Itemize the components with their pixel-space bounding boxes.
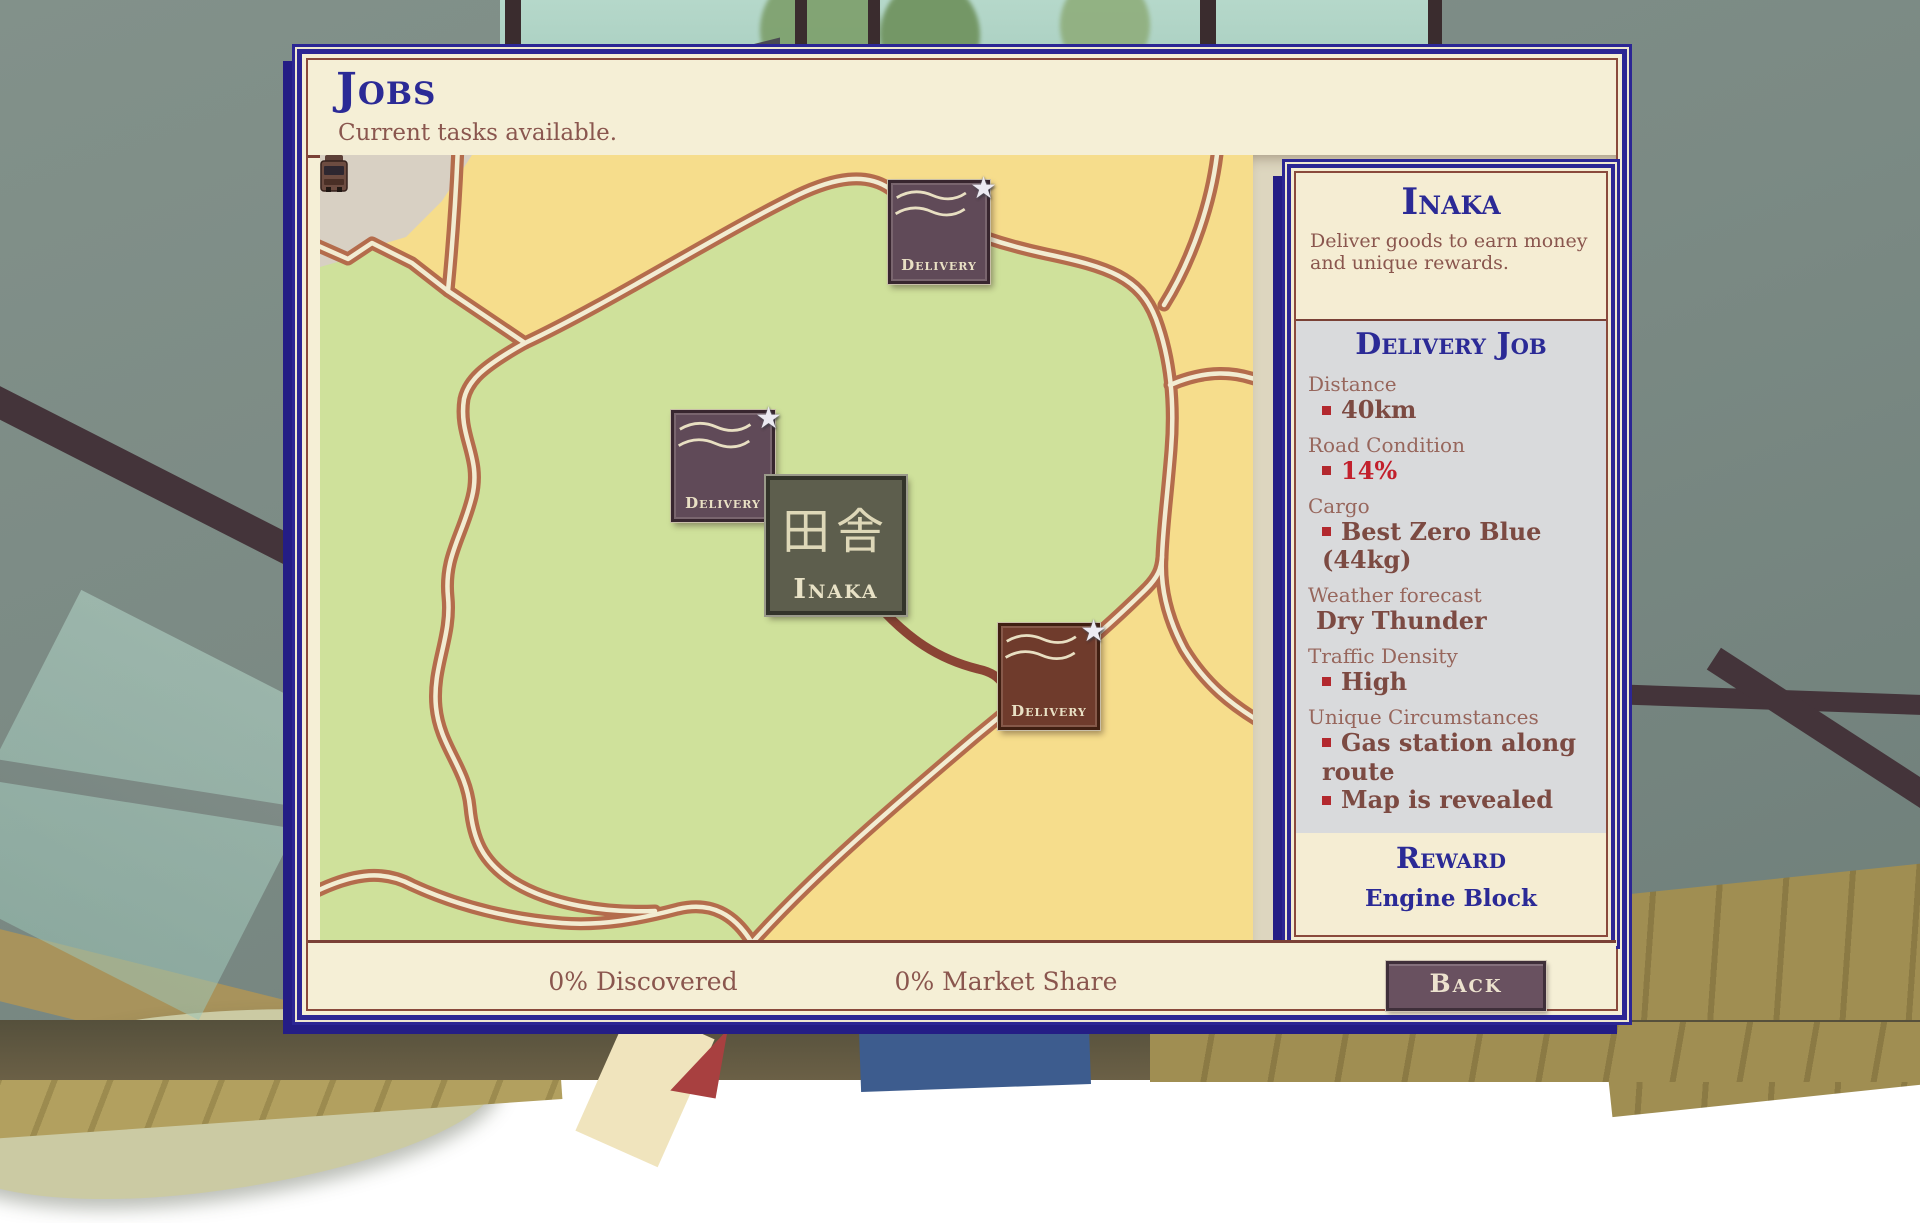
field-distance: Distance 40km	[1308, 373, 1600, 425]
delivery-job-marker-west[interactable]: Delivery ★	[671, 410, 775, 522]
reward-title: Reward	[1296, 841, 1606, 875]
delivery-job-marker-southeast[interactable]: Delivery ★	[998, 623, 1100, 730]
bullet-icon	[1322, 738, 1331, 747]
reward-value: Engine Block	[1296, 885, 1606, 912]
page-title: Jobs	[336, 64, 436, 115]
bullet-icon	[1322, 466, 1331, 475]
field-weather: Weather forecast Dry Thunder	[1308, 584, 1600, 636]
bullet-icon	[1322, 527, 1331, 536]
job-map[interactable]: Delivery ★ Delivery ★ Delivery ★	[320, 155, 1253, 940]
town-sign-kanji: 田舎	[770, 492, 902, 562]
status-bar: 0% Discovered 0% Market Share Back	[308, 940, 1616, 1009]
field-value: Map is revealed	[1308, 786, 1600, 815]
delivery-job-marker-north[interactable]: Delivery ★	[888, 180, 990, 284]
field-label: Unique Circumstances	[1308, 706, 1600, 729]
field-value: High	[1308, 668, 1600, 697]
market-share-stat: 0% Market Share	[796, 967, 1216, 996]
page-subtitle: Current tasks available.	[338, 120, 617, 146]
sidebar-description: Deliver goods to earn money and unique r…	[1310, 231, 1592, 275]
job-details-sidebar: Inaka Deliver goods to earn money and un…	[1287, 164, 1615, 944]
delivery-waves-icon	[891, 183, 972, 226]
field-value: Gas station along route	[1308, 729, 1600, 787]
star-icon: ★	[970, 171, 997, 206]
field-value: Best Zero Blue (44kg)	[1308, 518, 1600, 576]
marker-label: Delivery	[1001, 702, 1097, 720]
delivery-waves-icon	[1001, 626, 1082, 670]
field-label: Road Condition	[1308, 434, 1600, 457]
town-sign-inaka[interactable]: 田舎 Inaka	[766, 476, 906, 615]
field-label: Traffic Density	[1308, 645, 1600, 668]
bullet-icon	[1322, 406, 1331, 415]
marker-label: Delivery	[674, 494, 772, 512]
town-sign-name: Inaka	[770, 574, 902, 605]
character-torso	[859, 1024, 1091, 1092]
back-button[interactable]: Back	[1386, 961, 1546, 1011]
jobs-panel-frame: Jobs Current tasks available.	[306, 58, 1618, 1011]
player-truck-icon	[320, 155, 348, 194]
delivery-waves-icon	[674, 413, 756, 460]
star-icon: ★	[1080, 614, 1107, 649]
sidebar-frame: Inaka Deliver goods to earn money and un…	[1294, 171, 1608, 937]
field-cargo: Cargo Best Zero Blue (44kg)	[1308, 495, 1600, 576]
job-fields: Distance 40km Road Condition 14% Cargo B…	[1308, 373, 1600, 824]
job-title: Delivery Job	[1296, 327, 1606, 362]
field-value: Dry Thunder	[1308, 607, 1600, 636]
field-road-condition: Road Condition 14%	[1308, 434, 1600, 486]
marker-label: Delivery	[891, 256, 987, 274]
field-label: Cargo	[1308, 495, 1600, 518]
field-label: Weather forecast	[1308, 584, 1600, 607]
sidebar-town-title: Inaka	[1296, 181, 1606, 223]
discovered-stat: 0% Discovered	[433, 967, 853, 996]
bullet-icon	[1322, 796, 1331, 805]
field-unique-circumstances: Unique Circumstances Gas station along r…	[1308, 706, 1600, 815]
field-value: 40km	[1308, 396, 1600, 425]
field-label: Distance	[1308, 373, 1600, 396]
bullet-icon	[1322, 677, 1331, 686]
jobs-panel: Jobs Current tasks available.	[297, 49, 1627, 1020]
reward-section: Reward Engine Block	[1296, 833, 1606, 935]
field-traffic: Traffic Density High	[1308, 645, 1600, 697]
field-value: 14%	[1308, 457, 1600, 486]
job-details-section: Delivery Job Distance 40km Road Conditio…	[1296, 319, 1606, 835]
window-beam	[1707, 648, 1920, 899]
star-icon: ★	[755, 401, 782, 436]
